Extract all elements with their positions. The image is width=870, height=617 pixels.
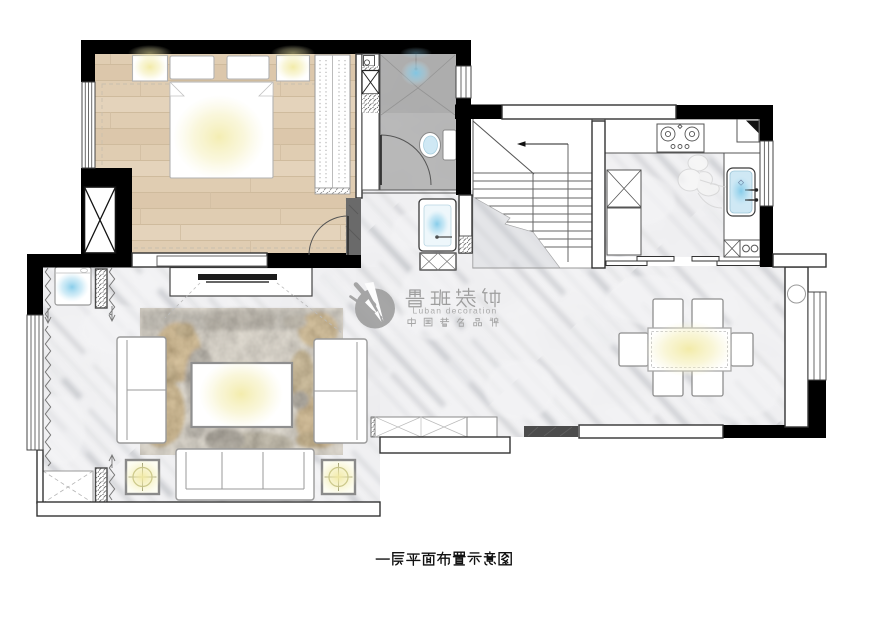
svg-text:Luban decoration: Luban decoration	[413, 306, 498, 316]
